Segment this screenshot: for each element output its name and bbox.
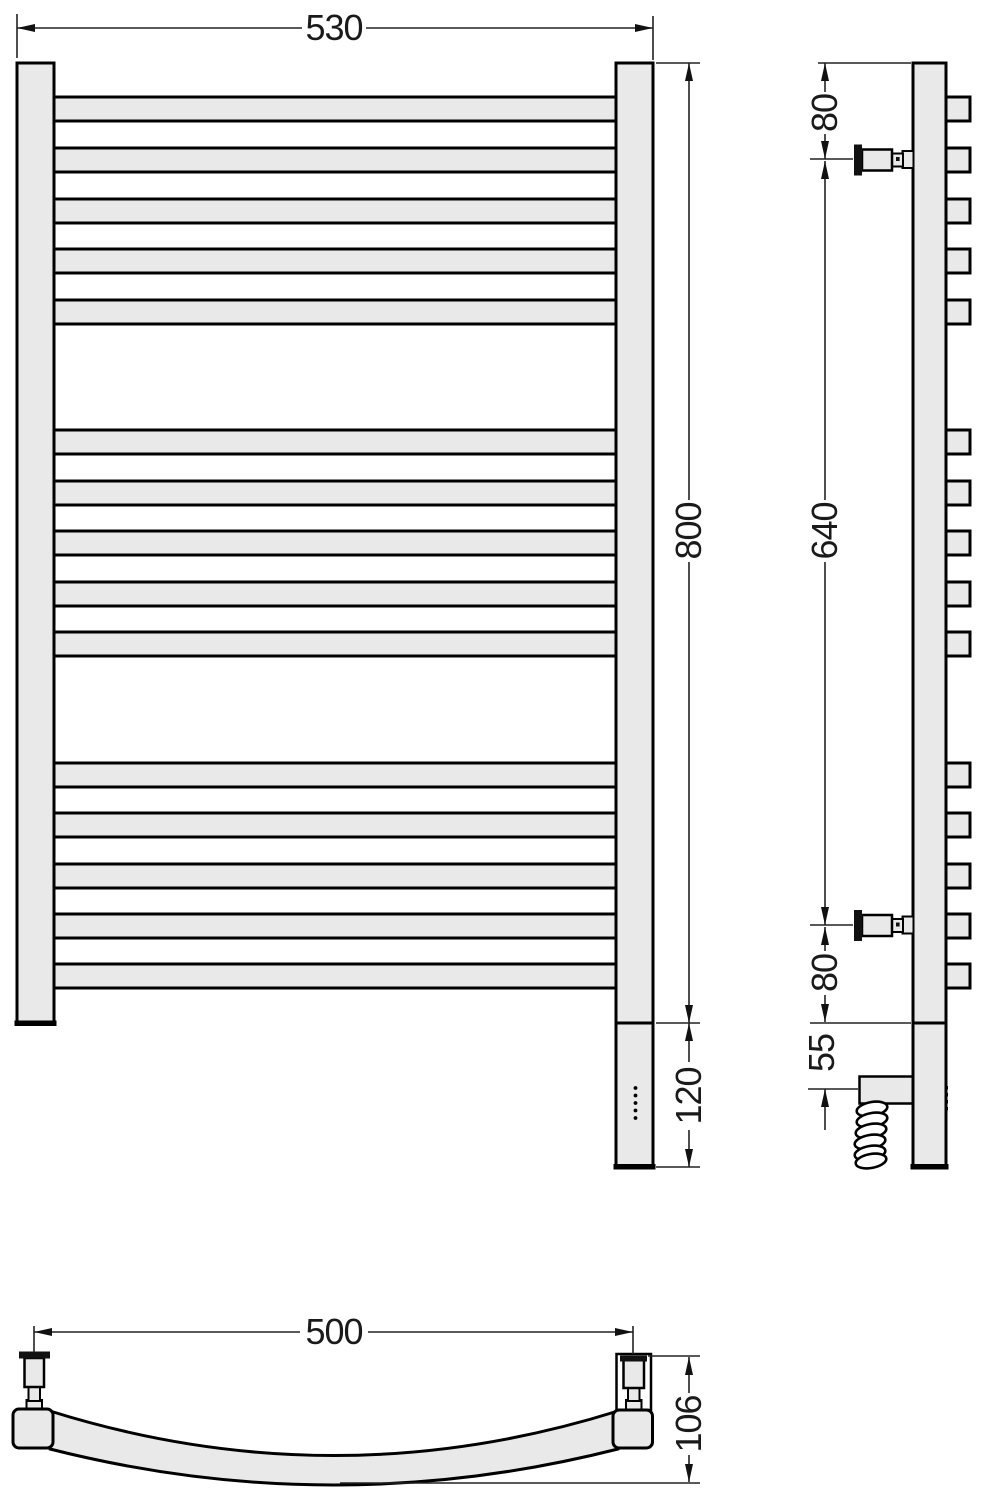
front-height-label: 800 bbox=[668, 502, 709, 559]
bracket-flange bbox=[19, 1352, 50, 1359]
arrow-up-icon bbox=[685, 1023, 693, 1041]
indicator-dot bbox=[634, 1086, 638, 1090]
arrow-down-icon bbox=[685, 1149, 693, 1167]
bracket-body bbox=[862, 150, 892, 171]
indicator-dot bbox=[634, 1101, 638, 1105]
bottom-right-bracket bbox=[617, 1354, 652, 1410]
bracket-flange bbox=[620, 1356, 647, 1362]
bracket-body bbox=[624, 1360, 645, 1388]
side-bottom-offset-label: 80 bbox=[804, 954, 845, 992]
bracket-flange bbox=[854, 145, 862, 176]
arrow-up-icon bbox=[685, 1357, 693, 1375]
arrow-down-icon bbox=[685, 1464, 693, 1482]
towel-rail-technical-drawing: 530 800 120 bbox=[0, 0, 986, 1500]
arrow-down-icon bbox=[821, 907, 829, 925]
side-post bbox=[913, 63, 946, 1023]
bracket-screw-icon bbox=[896, 923, 900, 927]
indicator-dot bbox=[945, 1107, 948, 1110]
side-bracket-bottom bbox=[854, 910, 914, 941]
dim-span-640: 640 bbox=[804, 161, 853, 925]
front-right-post-cap bbox=[614, 1164, 656, 1170]
indicator-dot bbox=[945, 1093, 948, 1096]
indicator-dot bbox=[945, 1100, 948, 1103]
arrow-up-icon bbox=[685, 63, 693, 81]
rung-stub bbox=[944, 531, 970, 555]
rung bbox=[52, 481, 618, 505]
indicator-dot bbox=[634, 1109, 638, 1113]
side-spiral-cable bbox=[854, 1099, 889, 1170]
rung-stub bbox=[944, 582, 970, 606]
side-view: 80 640 80 55 bbox=[801, 63, 970, 1171]
arrow-down-icon bbox=[821, 141, 829, 159]
rung-stub bbox=[944, 914, 970, 938]
arrow-right-icon bbox=[615, 1328, 633, 1336]
arrow-left-icon bbox=[34, 1328, 52, 1336]
rung-stub bbox=[944, 199, 970, 223]
rung bbox=[52, 813, 618, 837]
rung-stub bbox=[944, 300, 970, 324]
front-width-label: 530 bbox=[305, 7, 362, 48]
front-heater-label: 120 bbox=[668, 1067, 709, 1124]
rung-stub bbox=[944, 249, 970, 273]
rung bbox=[52, 148, 618, 172]
dim-height-800: 800 bbox=[656, 63, 709, 1023]
dim-span-500: 500 bbox=[34, 1311, 633, 1354]
bottom-span-label: 500 bbox=[305, 1311, 362, 1352]
rung-stub bbox=[944, 430, 970, 454]
rung-stub bbox=[944, 964, 970, 988]
dim-width-530: 530 bbox=[17, 7, 653, 60]
rung bbox=[52, 864, 618, 888]
rung bbox=[52, 300, 618, 324]
arrow-up-icon bbox=[821, 161, 829, 179]
front-rungs bbox=[52, 97, 618, 988]
arrow-right-icon bbox=[635, 24, 653, 32]
dim-bottom-offset-80: 80 bbox=[804, 927, 911, 1023]
rung bbox=[52, 914, 618, 938]
front-view: 530 800 120 bbox=[15, 7, 710, 1170]
rung-stub bbox=[944, 864, 970, 888]
rung bbox=[52, 964, 618, 988]
bracket-collar bbox=[903, 917, 914, 934]
arrow-up-icon bbox=[821, 927, 829, 945]
rung bbox=[52, 430, 618, 454]
rung bbox=[52, 97, 618, 121]
side-heater-section bbox=[913, 1023, 946, 1167]
side-post-cap bbox=[911, 1164, 949, 1170]
side-span-label: 640 bbox=[804, 502, 845, 559]
bracket-screw-icon bbox=[896, 157, 900, 161]
side-bracket-top bbox=[854, 145, 914, 176]
rung-stub bbox=[944, 813, 970, 837]
side-heating-element bbox=[860, 1077, 914, 1104]
bracket-body bbox=[25, 1358, 45, 1387]
arrow-up-icon bbox=[821, 1089, 829, 1107]
rung-stub bbox=[944, 481, 970, 505]
side-top-offset-label: 80 bbox=[804, 94, 845, 132]
side-rung-stubs bbox=[944, 97, 970, 988]
bottom-curved-rung bbox=[50, 1411, 618, 1485]
indicator-dot bbox=[634, 1094, 638, 1098]
bottom-depth-label: 106 bbox=[668, 1395, 709, 1452]
bracket-body bbox=[862, 915, 892, 936]
arrow-down-icon bbox=[821, 1004, 829, 1022]
indicator-dot bbox=[945, 1086, 948, 1089]
rung-stub bbox=[944, 97, 970, 121]
rung-stub bbox=[944, 763, 970, 787]
bottom-left-post bbox=[13, 1409, 53, 1448]
side-cable-entry-label: 55 bbox=[801, 1034, 842, 1072]
rung bbox=[52, 199, 618, 223]
front-left-post-cap bbox=[15, 1021, 57, 1027]
arrow-up-icon bbox=[821, 63, 829, 81]
dim-heater-120: 120 bbox=[656, 1023, 709, 1167]
rung-stub bbox=[944, 148, 970, 172]
rung-stub bbox=[944, 632, 970, 656]
dim-cable-55: 55 bbox=[801, 1034, 858, 1130]
indicator-dot bbox=[634, 1116, 638, 1120]
bracket-collar bbox=[903, 151, 914, 168]
arrow-left-icon bbox=[17, 24, 35, 32]
arrow-down-icon bbox=[685, 1005, 693, 1023]
rung bbox=[52, 531, 618, 555]
bottom-left-bracket bbox=[19, 1352, 50, 1411]
front-right-post bbox=[616, 63, 653, 1023]
rung bbox=[52, 582, 618, 606]
drawing-svg: 530 800 120 bbox=[0, 0, 986, 1500]
bottom-right-post bbox=[613, 1410, 653, 1448]
rung bbox=[52, 763, 618, 787]
front-left-post bbox=[17, 63, 54, 1023]
bracket-flange bbox=[854, 910, 862, 941]
rung bbox=[52, 249, 618, 273]
rung bbox=[52, 632, 618, 656]
bottom-view: 500 106 bbox=[13, 1311, 709, 1485]
